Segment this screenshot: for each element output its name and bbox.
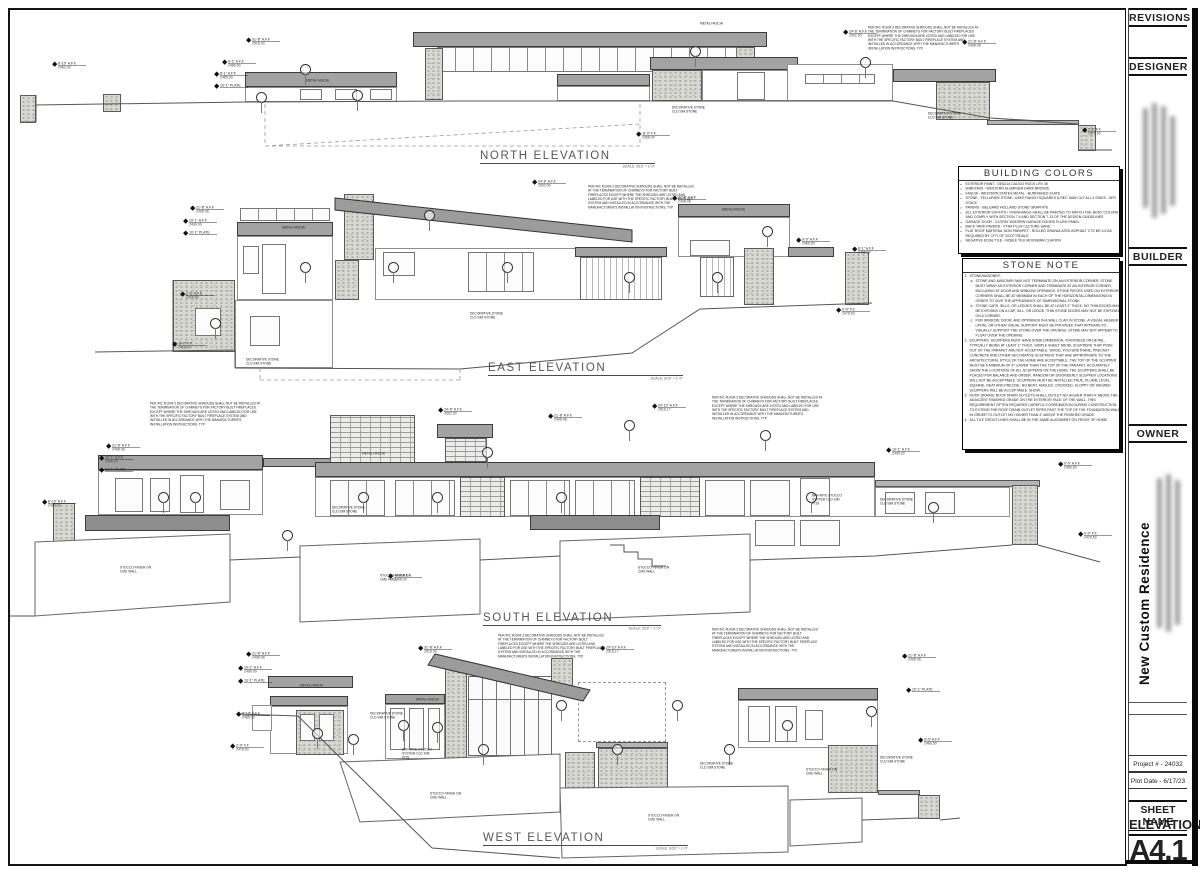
building-colors-title: BUILDING COLORS — [959, 167, 1119, 181]
leader-line — [617, 754, 618, 765]
material-label: METAL FASCIA — [282, 226, 382, 234]
material-label-text: METAL FASCIA — [306, 79, 406, 83]
callout-datum: 2482.00 — [58, 66, 113, 70]
reference-tag-circle-icon — [348, 734, 359, 745]
callout-datum: 2486.50 — [924, 742, 979, 746]
callout-datum: 2518.00 — [252, 42, 307, 46]
callout-height: 10'-1" PLATE — [912, 688, 940, 692]
building-colors-body: EXTERIOR PAINT - DE6214 CALICO ROCK LRV … — [959, 181, 1119, 255]
north-belowgrade-lines — [265, 104, 640, 146]
west-elevation-callout: ◆29'-10" A.F.F.2516.17 — [600, 646, 716, 661]
east-elevation-scale: SCALE: 3/16" = 1'-0" — [651, 377, 683, 381]
leader-line — [305, 272, 306, 283]
leader-line — [507, 272, 508, 283]
south-elevation-callout: ◆9'-0" A.F.F.2486.50 — [1058, 462, 1174, 477]
leader-line — [717, 282, 718, 293]
leader-line — [403, 730, 404, 741]
east-elevation-callout: ◆8'-1" A.F.F.2485.00 — [852, 247, 968, 262]
reference-tag-circle-icon — [158, 492, 169, 503]
datum-diamond-icon: ◆ — [1058, 462, 1063, 477]
stone-note-box: STONE NOTE 1.STONE/MASONRY:a.STONE AND M… — [962, 258, 1120, 450]
south-elevation-callout: ◆24'-6" A.F.F.2502.50 — [438, 408, 554, 423]
material-label: DECORATIVE STONE CLD SIM STONE — [700, 762, 800, 778]
reference-tag-circle-icon — [556, 700, 567, 711]
leader-line — [195, 502, 196, 513]
datum-diamond-icon: ◆ — [236, 712, 241, 727]
material-label-text: BAR-RITE STUCCO SYSTEM CLD SIM #729 — [402, 748, 502, 760]
material-label: DECORATIVE STONE CLD SIM STONE — [332, 506, 432, 522]
chimney-shroud-note-text: PER IRC R1004.3 DECORATIVE SHROUDS SHALL… — [712, 396, 824, 421]
stone-note-item: 2.SCUPPERS: SCUPPERS MUST HAVE SOME DIME… — [965, 339, 1120, 394]
note-item-text: STONE AND MASONRY MAY NOT TERMINATE ON A… — [976, 279, 1120, 304]
west-elevation-title: WEST ELEVATION SCALE: 3/16" = 1'-0" — [483, 832, 688, 846]
datum-diamond-icon: ◆ — [843, 30, 848, 45]
reference-tag-circle-icon — [300, 262, 311, 273]
north-elevation-callout: ◆-8'-0" F.F.2468.00 — [636, 132, 752, 147]
note-item: FLAT ROOF MATERIAL NON PARAPET - ROLLED … — [966, 229, 1120, 238]
material-label-text: BAR-RITE STUCCO SYSTEM CLD SIM #729 — [812, 494, 912, 506]
material-label-text: METAL FASCIA — [416, 698, 516, 702]
material-label-text: DECORATIVE STONE CLD SIM STONE — [700, 762, 800, 770]
note-item-text: ALL TILE GROUT LINES SHALL BE IN THE SAM… — [970, 418, 1108, 423]
chimney-shroud-note: PER IRC R1004.3 DECORATIVE SHROUDS SHALL… — [868, 26, 980, 76]
north-elevation-scale: SCALE: 3/16" = 1'-0" — [623, 165, 655, 169]
leader-line — [629, 430, 630, 441]
callout-height: 10'-1" PLATE — [244, 679, 272, 683]
stone-note-item: a.STONE AND MASONRY MAY NOT TERMINATE ON… — [971, 279, 1120, 304]
material-label-text: STUCCO FINISH ON CMU WALL — [638, 566, 738, 574]
callout-datum: 2485.00 — [220, 76, 275, 80]
west-elevation-title-text: WEST ELEVATION — [483, 832, 688, 844]
material-label-text: METAL FASCIA — [282, 226, 382, 230]
reference-tag-circle-icon — [712, 272, 723, 283]
callout-datum: 2486.50 — [1064, 466, 1119, 470]
west-elevation-scale: SCALE: 3/16" = 1'-0" — [656, 847, 688, 851]
callout-datum: 2476.50 — [1084, 536, 1139, 540]
material-label-text: STUCCO FINISH ON CMU WALL — [648, 814, 748, 822]
leader-line — [287, 540, 288, 551]
callout-datum: 2496.00 — [244, 670, 299, 674]
leader-line — [871, 716, 872, 727]
reference-tag-circle-icon — [624, 272, 635, 283]
datum-diamond-icon: ◆ — [246, 38, 251, 53]
datum-diamond-icon: ◆ — [918, 738, 923, 753]
callout-height: 10'-1" PLATE — [105, 468, 133, 472]
title-underline — [488, 375, 683, 376]
north-elevation-callout: ◆31'-8" A.F.F.2518.00 — [246, 38, 362, 53]
leader-line — [629, 282, 630, 293]
leader-line — [357, 100, 358, 111]
note-item: ALL EXTERIOR SOFFITS / OVERHANGS SHALL B… — [966, 210, 1120, 219]
datum-diamond-icon: ◆ — [183, 231, 188, 239]
material-label: DECORATIVE STONE CLD SIM STONE — [672, 106, 772, 122]
material-label: STUCCO FINISH ON CMU WALL — [648, 814, 748, 830]
callout-height: 10'-1" PLATE — [220, 84, 248, 88]
leader-line — [487, 457, 488, 468]
material-label-text: METAL FASCIA — [300, 684, 400, 688]
leader-line — [317, 738, 318, 749]
material-label: DECORATIVE STONE CLD SIM STONE — [928, 112, 1028, 128]
reference-tag-circle-icon — [256, 92, 267, 103]
east-elevation-callout: ◆0'-0" F.F.2476.50 — [836, 308, 952, 323]
callout-datum: 2496.00 — [105, 460, 160, 464]
datum-diamond-icon: ◆ — [532, 180, 537, 195]
datum-diamond-icon: ◆ — [1078, 532, 1083, 547]
material-label: BAR-RITE STUCCO SYSTEM CLD SIM #729 — [812, 494, 912, 518]
callout-datum: 2485.00 — [858, 251, 913, 255]
south-elevation-callout: ◆0'-0" F.F.2476.50 — [1078, 532, 1194, 547]
leader-line — [429, 220, 430, 231]
building-colors-list: EXTERIOR PAINT - DE6214 CALICO ROCK LRV … — [961, 182, 1120, 243]
leader-line — [767, 236, 768, 247]
note-item: STONE - TELLURIDE STONE, OAKS RANCH SQUA… — [966, 196, 1120, 205]
callout-datum: 2468.00 — [178, 346, 233, 350]
east-elevation-title-text: EAST ELEVATION — [488, 362, 683, 374]
reference-tag-circle-icon — [762, 226, 773, 237]
material-label: STUCCO FINISH ON CMU WALL — [380, 574, 480, 590]
leader-line — [787, 730, 788, 741]
material-label-text: DECORATIVE STONE CLD SIM STONE — [246, 358, 346, 366]
south-elevation-title: SOUTH ELEVATION SCALE: 3/16" = 1'-0" — [483, 612, 661, 626]
east-elevation-title: EAST ELEVATION SCALE: 3/16" = 1'-0" — [488, 362, 683, 376]
chimney-shroud-note: PER IRC R1004.3 DECORATIVE SHROUDS SHALL… — [150, 402, 262, 452]
leader-line — [561, 710, 562, 721]
reference-tag-circle-icon — [612, 744, 623, 755]
datum-diamond-icon: ◆ — [230, 744, 235, 759]
north-elevation-title-text: NORTH ELEVATION — [480, 150, 655, 162]
callout-datum: 2498.08 — [252, 656, 307, 660]
callout-datum: 2485.00 — [48, 504, 103, 508]
material-label: BAR-RITE STUCCO SYSTEM CLD SIM #729 — [402, 748, 502, 772]
datum-diamond-icon: ◆ — [246, 652, 251, 667]
south-elevation-callout: ◆21'-8" A.F.F.2498.08 — [548, 414, 664, 429]
title-underline — [480, 163, 655, 164]
callout-datum: 2502.50 — [538, 184, 593, 188]
datum-diamond-icon: ◆ — [852, 247, 857, 262]
callout-datum: 2498.08 — [908, 658, 963, 662]
south-elevation-scale: SCALE: 3/16" = 1'-0" — [629, 627, 661, 631]
leader-line — [437, 502, 438, 513]
leader-line — [561, 502, 562, 513]
callout-datum: 2486.50 — [228, 64, 283, 68]
material-label: METAL FASCIA — [416, 698, 516, 706]
datum-diamond-icon: ◆ — [438, 408, 443, 423]
south-elevation-title-text: SOUTH ELEVATION — [483, 612, 661, 624]
datum-diamond-icon: ◆ — [652, 404, 657, 419]
south-elevation-callout: ◆8'-10" A.F.F.2485.00 — [42, 500, 158, 515]
datum-diamond-icon: ◆ — [906, 688, 911, 696]
leader-line — [677, 710, 678, 721]
datum-diamond-icon: ◆ — [172, 342, 177, 357]
datum-diamond-icon: ◆ — [52, 62, 57, 77]
callout-datum: 2486.50 — [802, 242, 857, 246]
datum-diamond-icon: ◆ — [418, 646, 423, 661]
note-item-text: ROOF DRAINS: ROOF DRAIN OUTLETS SHALL OU… — [970, 393, 1120, 418]
material-label: DECORATIVE STONE CLD SIM STONE — [246, 358, 346, 374]
reference-tag-circle-icon — [358, 492, 369, 503]
material-label: METAL FASCIA — [306, 79, 406, 87]
callout-datum: 2478.50 — [236, 748, 291, 752]
west-elevation-callout: ◆2'-0" F.F.2478.50 — [230, 744, 346, 759]
datum-diamond-icon: ◆ — [796, 238, 801, 253]
material-label: METAL FASCIA — [300, 684, 400, 692]
datum-diamond-icon: ◆ — [902, 654, 907, 669]
material-label-text: DECORATIVE STONE CLD SIM STONE — [332, 506, 432, 514]
callout-height: 10'-1" PLATE — [189, 231, 217, 235]
leader-line — [163, 502, 164, 513]
chimney-shroud-note: PER IRC R1004.3 DECORATIVE SHROUDS SHALL… — [712, 628, 822, 678]
stone-note-item: b.STONE CAPS, SILLS, OR LEDGES SHALL BE … — [971, 304, 1120, 319]
reference-tag-circle-icon — [352, 90, 363, 101]
north-elevation-callout: ◆0'-0" F.F.2476.50 — [1082, 128, 1198, 143]
chimney-shroud-note: PER IRC R1004.3 DECORATIVE SHROUDS SHALL… — [712, 396, 824, 446]
west-elevation-callout: ◆21'-8" A.F.F.2498.08 — [902, 654, 1018, 669]
material-label-text: STUCCO FINISH ON CMU WALL — [380, 574, 480, 582]
reference-tag-circle-icon — [300, 64, 311, 75]
datum-diamond-icon: ◆ — [548, 414, 553, 429]
callout-datum: 2468.00 — [642, 136, 697, 140]
datum-diamond-icon: ◆ — [836, 308, 841, 323]
west-elevation-callout: ◆10'-1" PLATE — [906, 688, 1022, 696]
datum-diamond-icon: ◆ — [42, 500, 47, 515]
callout-datum: 2476.50 — [1088, 132, 1143, 136]
material-label-text: DECORATIVE STONE CLD SIM STONE — [470, 312, 570, 320]
chimney-shroud-note-text: PER IRC R1004.3 DECORATIVE SHROUDS SHALL… — [868, 26, 980, 51]
east-elevation-callout: ◆2'-0" A.F.F.2478.50 — [180, 292, 296, 307]
reference-tag-circle-icon — [432, 492, 443, 503]
callout-datum: 2476.50 — [842, 312, 897, 316]
stone-note-item: 4.ALL TILE GROUT LINES SHALL BE IN THE S… — [965, 418, 1120, 423]
stone-note-title: STONE NOTE — [963, 259, 1119, 273]
callout-datum: 2498.08 — [196, 210, 251, 214]
north-elevation-callout: ◆8'-10" A.F.F.2482.00 — [52, 62, 168, 77]
material-label-text: STUCCO FINISH ON CMU WALL — [430, 792, 530, 800]
leader-line — [865, 67, 866, 78]
stone-note-item: 3.ROOF DRAINS: ROOF DRAIN OUTLETS SHALL … — [965, 393, 1120, 418]
reference-tag-circle-icon — [624, 420, 635, 431]
chimney-shroud-note-text: PER IRC R1004.3 DECORATIVE SHROUDS SHALL… — [712, 628, 822, 653]
note-item-text: SCUPPERS: SCUPPERS MUST HAVE SOME DIMENS… — [970, 339, 1120, 394]
east-elevation-callout: ◆-8'-0" F.F.2468.00 — [172, 342, 288, 357]
reference-tag-circle-icon — [388, 262, 399, 273]
reference-tag-circle-icon — [724, 744, 735, 755]
reference-tag-circle-icon — [556, 492, 567, 503]
callout-datum: 2516.17 — [606, 650, 661, 654]
leader-line — [695, 56, 696, 67]
datum-diamond-icon: ◆ — [636, 132, 641, 147]
material-label-text: METAL FASCIA — [700, 22, 800, 26]
material-label-text: METAL FASCIA — [722, 208, 822, 212]
note-item-text: FOR WINDOW, DOOR, AND OPENINGS IN A WALL… — [976, 319, 1120, 339]
datum-diamond-icon: ◆ — [214, 84, 219, 92]
building-colors-note-box: BUILDING COLORS EXTERIOR PAINT - DE6214 … — [958, 166, 1120, 254]
reference-tag-circle-icon — [782, 720, 793, 731]
leader-line — [393, 272, 394, 283]
leader-line — [215, 328, 216, 339]
stone-note-list: 1.STONE/MASONRY:a.STONE AND MASONRY MAY … — [963, 273, 1119, 424]
reference-tag-circle-icon — [282, 530, 293, 541]
leader-line — [261, 102, 262, 113]
datum-diamond-icon: ◆ — [238, 679, 243, 687]
leader-line — [437, 732, 438, 743]
reference-tag-circle-icon — [312, 728, 323, 739]
title-underline — [483, 625, 661, 626]
material-label: STUCCO FINISH ON CMU WALL — [120, 566, 220, 582]
reference-tag-circle-icon — [672, 700, 683, 711]
material-label: METAL FASCIA — [700, 22, 800, 30]
callout-datum: 2516.17 — [658, 408, 713, 412]
material-label: DECORATIVE STONE CLD SIM STONE — [880, 756, 980, 772]
chimney-shroud-note-text: PER IRC R1004.3 DECORATIVE SHROUDS SHALL… — [498, 634, 608, 659]
chimney-shroud-note: PER IRC R1004.3 DECORATIVE SHROUDS SHALL… — [498, 634, 608, 684]
west-elevation-callout: ◆9'-0" A.F.F.2486.50 — [918, 738, 1034, 753]
reference-tag-circle-icon — [424, 210, 435, 221]
material-label-text: DECORATIVE STONE CLD SIM STONE — [880, 756, 980, 764]
material-label-text: DECORATIVE STONE CLD SIM STONE — [370, 712, 470, 720]
leader-line — [353, 744, 354, 755]
south-elevation-callout: ◆10'-1" PLATE — [99, 468, 215, 476]
note-item-text: STONE CAPS, SILLS, OR LEDGES SHALL BE AT… — [976, 304, 1120, 319]
west-elevation-callout: ◆21'-8" A.F.F.2498.08 — [246, 652, 362, 667]
reference-tag-circle-icon — [502, 262, 513, 273]
stone-note-item: c.FOR WINDOW, DOOR, AND OPENINGS IN A WA… — [971, 319, 1120, 339]
title-underline — [483, 845, 688, 846]
callout-datum: 2485.00 — [242, 716, 297, 720]
material-label-text: DECORATIVE STONE CLD SIM STONE — [672, 106, 772, 114]
callout-datum: 2502.50 — [444, 412, 499, 416]
datum-diamond-icon: ◆ — [180, 292, 185, 307]
reference-tag-circle-icon — [482, 447, 493, 458]
north-elevation-title: NORTH ELEVATION SCALE: 3/16" = 1'-0" — [480, 150, 655, 164]
reference-tag-circle-icon — [866, 706, 877, 717]
callout-datum: 2496.00 — [189, 223, 244, 227]
chimney-shroud-note-text: PER IRC R1004.3 DECORATIVE SHROUDS SHALL… — [588, 185, 698, 210]
callout-datum: 2498.08 — [554, 418, 609, 422]
material-label: METAL FASCIA — [362, 452, 462, 460]
material-label: DECORATIVE STONE CLD SIM STONE — [370, 712, 470, 728]
material-label: METAL FASCIA — [722, 208, 822, 216]
material-label-text: STUCCO FINISH ON CMU WALL — [120, 566, 220, 574]
datum-diamond-icon: ◆ — [886, 448, 891, 463]
material-label-text: DECORATIVE STONE CLD SIM STONE — [928, 112, 1028, 120]
material-label: DECORATIVE STONE CLD SIM STONE — [470, 312, 570, 328]
callout-datum: 2478.50 — [186, 296, 241, 300]
stone-note-body: 1.STONE/MASONRY:a.STONE AND MASONRY MAY … — [963, 273, 1119, 451]
material-label: STUCCO FINISH ON CMU WALL — [638, 566, 738, 582]
datum-diamond-icon: ◆ — [1082, 128, 1087, 143]
callout-datum: 2518.00 — [424, 650, 479, 654]
reference-tag-circle-icon — [210, 318, 221, 329]
reference-tag-circle-icon — [690, 46, 701, 57]
chimney-shroud-note-text: PER IRC R1004.3 DECORATIVE SHROUDS SHALL… — [150, 402, 262, 427]
callout-datum: 2496.00 — [892, 452, 947, 456]
datum-diamond-icon: ◆ — [99, 468, 104, 476]
material-label: STUCCO FINISH ON CMU WALL — [430, 792, 530, 808]
west-elevation-callout: ◆8'-10" A.F.F.2485.00 — [236, 712, 352, 727]
note-item: NEGATIVE EDGE TILE - NOBLE TILE MOSSMAN … — [966, 239, 1120, 244]
chimney-shroud-note: PER IRC R1004.3 DECORATIVE SHROUDS SHALL… — [588, 185, 698, 235]
reference-tag-circle-icon — [190, 492, 201, 503]
material-label-text: METAL FASCIA — [362, 452, 462, 456]
